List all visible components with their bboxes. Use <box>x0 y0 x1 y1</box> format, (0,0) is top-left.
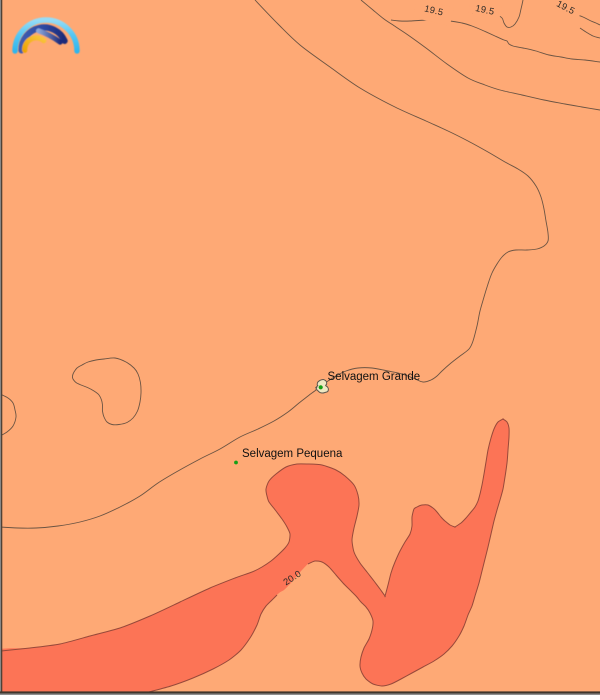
svg-text:Selvagem Pequena: Selvagem Pequena <box>242 448 343 460</box>
svg-text:Selvagem Grande: Selvagem Grande <box>328 371 421 383</box>
